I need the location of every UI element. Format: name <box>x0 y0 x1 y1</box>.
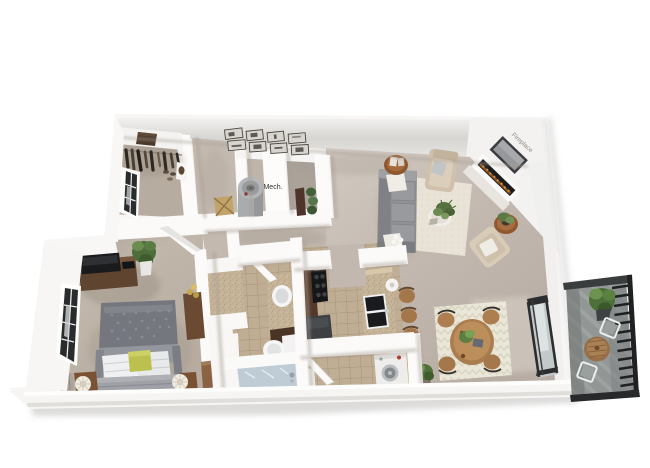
svg-text:Mech.: Mech. <box>263 184 282 191</box>
